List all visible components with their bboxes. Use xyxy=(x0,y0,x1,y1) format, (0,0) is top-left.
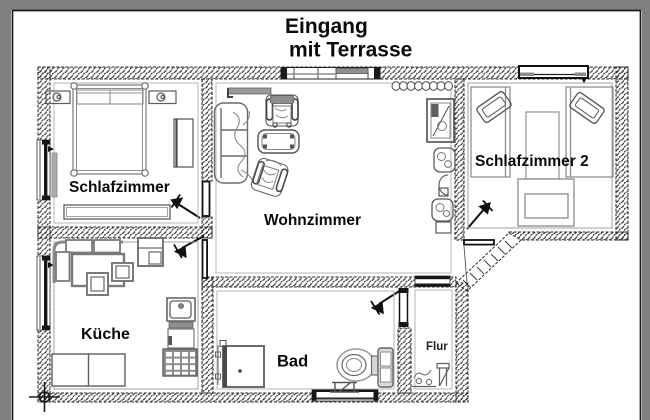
svg-text:Schlafzimmer: Schlafzimmer xyxy=(69,179,170,196)
svg-text:Eingang: Eingang xyxy=(285,15,368,38)
svg-text:mit Terrasse: mit Terrasse xyxy=(289,39,412,62)
svg-text:Bad: Bad xyxy=(277,353,308,371)
svg-text:Wohnzimmer: Wohnzimmer xyxy=(264,212,361,229)
svg-text:Küche: Küche xyxy=(81,326,130,343)
svg-text:Schlafzimmer 2: Schlafzimmer 2 xyxy=(475,153,589,170)
svg-text:Flur: Flur xyxy=(426,341,448,353)
